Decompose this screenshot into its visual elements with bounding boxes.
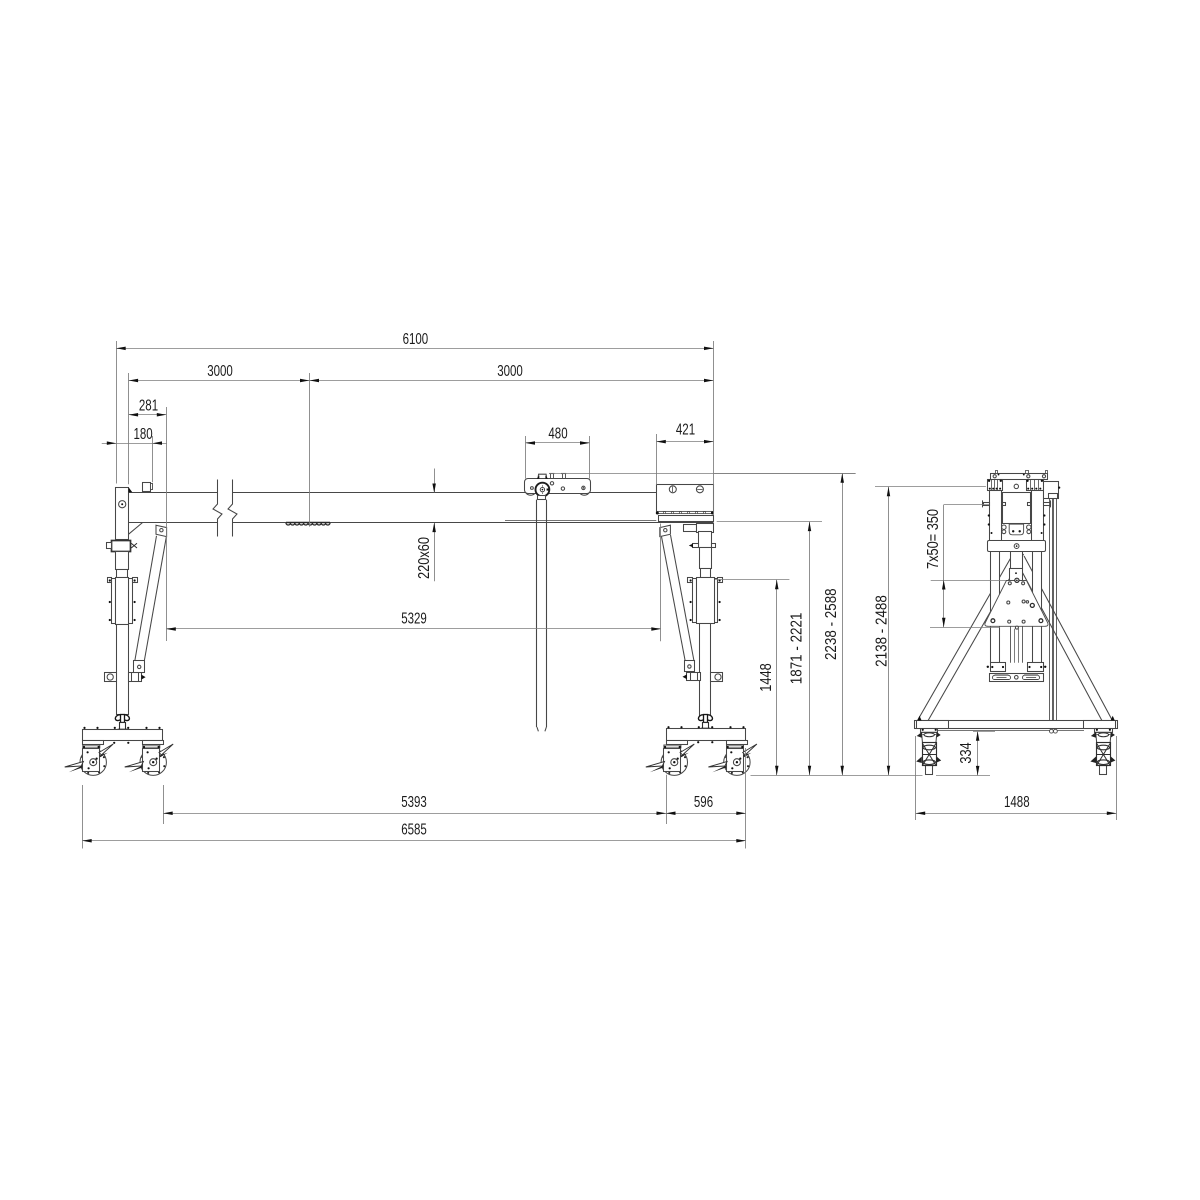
svg-text:334: 334 [958, 742, 976, 763]
svg-text:7x50= 350: 7x50= 350 [925, 509, 943, 569]
svg-text:1448: 1448 [758, 663, 776, 691]
svg-text:3000: 3000 [207, 361, 233, 379]
svg-text:421: 421 [676, 420, 695, 438]
svg-text:2238 - 2588: 2238 - 2588 [823, 588, 840, 660]
svg-text:1488: 1488 [1004, 792, 1030, 810]
svg-text:2138 - 2488: 2138 - 2488 [874, 595, 891, 667]
svg-text:1871 - 2221: 1871 - 2221 [789, 613, 806, 685]
svg-text:6100: 6100 [403, 329, 429, 347]
svg-text:480: 480 [548, 424, 567, 442]
svg-text:5393: 5393 [401, 792, 427, 810]
svg-text:281: 281 [139, 395, 158, 413]
svg-text:5329: 5329 [401, 609, 427, 627]
svg-text:180: 180 [133, 424, 152, 442]
svg-text:596: 596 [694, 792, 713, 810]
svg-text:220x60: 220x60 [416, 537, 434, 579]
svg-text:3000: 3000 [497, 361, 523, 379]
svg-text:6585: 6585 [401, 819, 427, 837]
